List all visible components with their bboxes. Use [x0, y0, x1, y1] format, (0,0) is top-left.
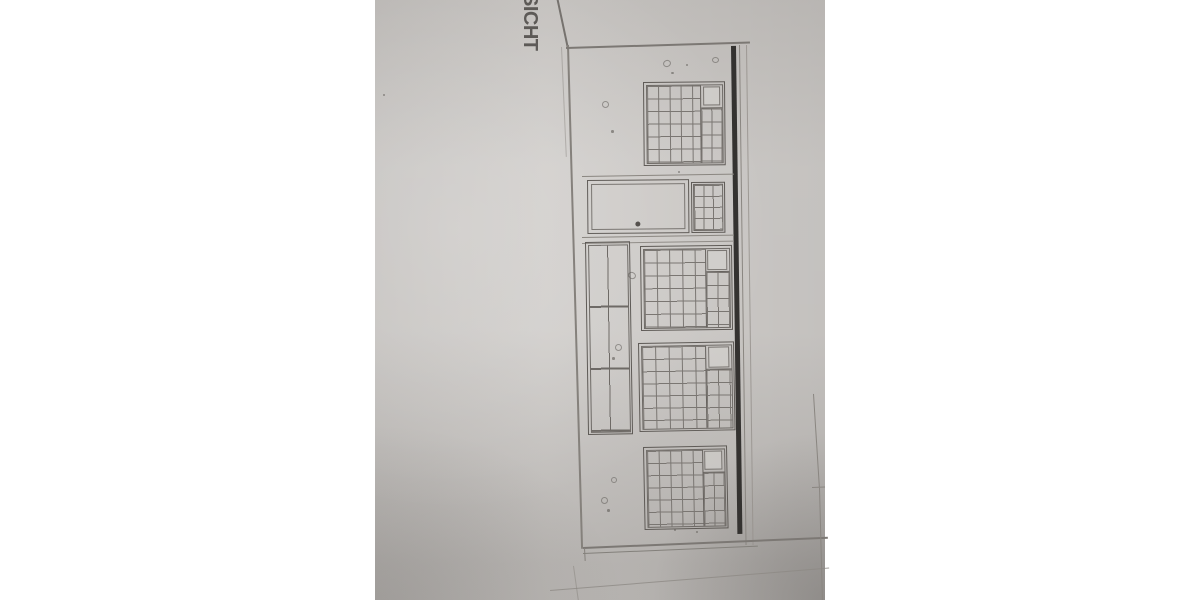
paper-speck: [671, 72, 674, 74]
paper-speck: [678, 171, 680, 173]
window-top-corner-pane: [701, 85, 721, 109]
paper-speck: [696, 531, 698, 533]
window-tall-grid: [588, 244, 631, 433]
paper-speck: [607, 509, 610, 512]
ground-line-3: [550, 568, 829, 592]
window-top-frame: [646, 84, 724, 164]
window-small: [691, 182, 725, 233]
screenshot-root: SICHT: [0, 0, 1200, 600]
band-bottom-line-1: [582, 235, 734, 239]
window-mid-1: [640, 245, 733, 331]
ground-line-1: [583, 537, 828, 549]
entrance-door: [587, 179, 689, 234]
paper-speck: [674, 529, 676, 531]
facade-top-edge: [566, 42, 750, 49]
elevation-label: SICHT: [518, 0, 541, 51]
paper-speck: [601, 497, 608, 504]
band-top-line: [582, 174, 734, 178]
window-top-grid: [647, 85, 701, 162]
window-mid-2: [638, 341, 736, 432]
facade-edge-upper: [556, 0, 569, 50]
paper-speck: [686, 64, 688, 66]
window-top-side: [700, 85, 722, 162]
fragment-line-lower: [819, 488, 823, 600]
paper-speck: [662, 59, 672, 68]
left-edge-stub: [584, 548, 586, 561]
facade-right-line-2: [746, 45, 754, 545]
left-edge-continuation: [573, 566, 579, 600]
window-bottom: [643, 445, 729, 530]
facade-left-edge: [567, 45, 583, 549]
paper-speck: [615, 344, 622, 351]
door-knob: [635, 222, 640, 227]
paper-speck: [602, 101, 609, 108]
fragment-line-upper: [813, 394, 820, 488]
paper-speck: [611, 477, 617, 483]
paper-speck: [611, 130, 614, 133]
facade-left-edge-faint: [561, 47, 567, 157]
paper-speck: [612, 357, 615, 360]
window-tall: [585, 241, 633, 435]
paper-speck: [383, 94, 385, 96]
window-top: [643, 81, 726, 166]
paper-speck: [712, 57, 719, 63]
photographed-drawing-paper: SICHT: [375, 0, 825, 600]
